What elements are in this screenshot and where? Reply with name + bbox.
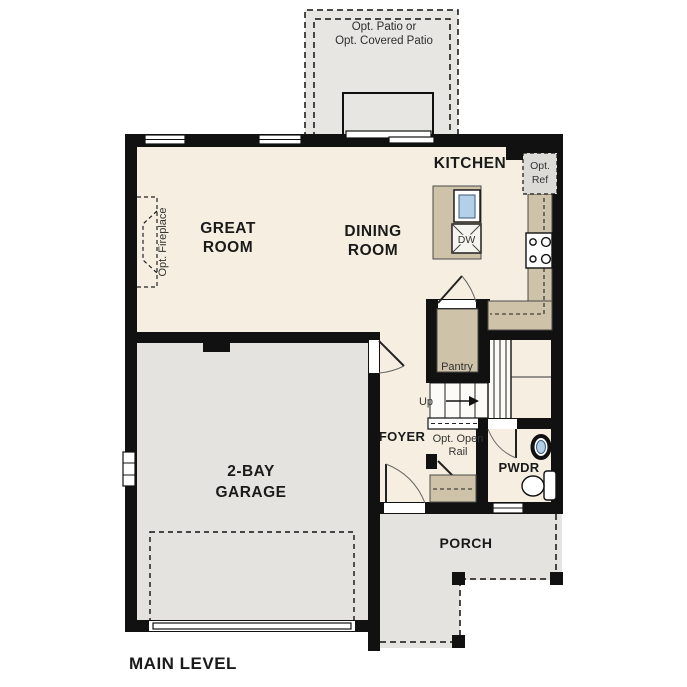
optional-patio-area: Opt. Patio or Opt. Covered Patio: [305, 10, 458, 138]
porch-post: [550, 572, 563, 585]
entry-closet: [430, 475, 476, 502]
opt-ref-label-line2: Ref: [532, 174, 548, 186]
fireplace-label: Opt. Fireplace: [157, 207, 169, 276]
kitchen-label: KITCHEN: [434, 155, 506, 172]
front-door-opening: [384, 503, 425, 513]
range-stove: [526, 233, 552, 268]
open-rail-label-line2: Rail: [449, 446, 468, 458]
porch-post: [452, 635, 465, 648]
porch-label: PORCH: [439, 535, 492, 551]
kitchen-sink: [454, 190, 480, 222]
powder-sink: [533, 436, 550, 458]
floor-plan: Opt. Patio or Opt. Covered Patio: [0, 0, 687, 687]
garage-area: [136, 340, 369, 622]
dishwasher-label: DW: [458, 234, 476, 246]
garage-entry-opening: [369, 340, 379, 373]
great-room-label-line1: GREAT: [200, 220, 256, 237]
floor-plan-page: Opt. Patio or Opt. Covered Patio: [0, 0, 687, 687]
pantry-door-opening: [438, 300, 476, 308]
kitchen-counter-bottom: [488, 301, 552, 330]
great-room-label-line2: ROOM: [203, 239, 253, 256]
window: [145, 135, 185, 144]
foyer-label: FOYER: [379, 429, 426, 444]
window: [259, 135, 301, 144]
garage-label-line2: GARAGE: [215, 484, 286, 501]
dining-room-label-line2: ROOM: [348, 242, 398, 259]
porch-post: [452, 572, 465, 585]
plan-title: MAIN LEVEL: [129, 654, 237, 673]
garage-window: [123, 452, 135, 486]
powder-door-opening: [488, 419, 517, 429]
dishwasher: DW: [452, 224, 481, 253]
up-label: Up: [419, 396, 433, 408]
open-rail-label-line1: Opt. Open: [433, 433, 484, 445]
porch-area: [380, 510, 563, 648]
garage-door-panel: [153, 623, 351, 629]
optional-refrigerator: Opt. Ref: [523, 153, 557, 194]
powder-window: [493, 503, 523, 513]
patio-label-line1: Opt. Patio or: [352, 21, 417, 33]
dining-room-label-line1: DINING: [344, 223, 401, 240]
powder-label: PWDR: [499, 460, 540, 475]
patio-label-line2: Opt. Covered Patio: [335, 35, 433, 47]
opt-ref-label-line1: Opt.: [530, 160, 550, 172]
pantry-label: Pantry: [441, 361, 473, 373]
garage-label-line1: 2-BAY: [227, 463, 275, 480]
kitchen-island: DW: [433, 186, 481, 259]
